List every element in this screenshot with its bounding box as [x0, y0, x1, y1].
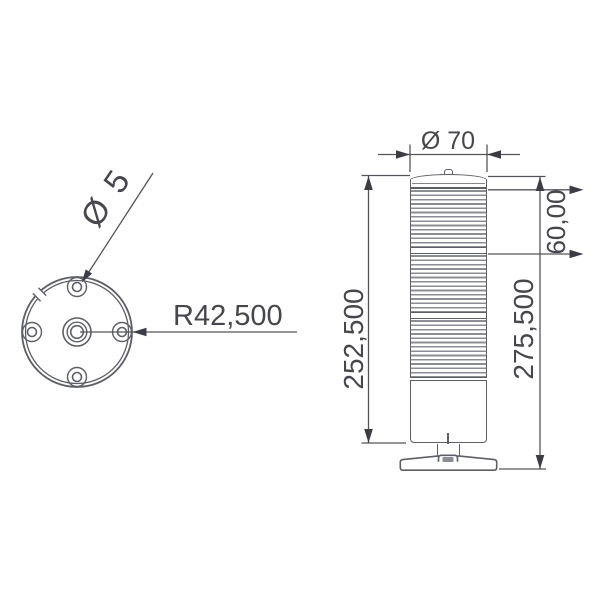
dim-arrowhead	[364, 429, 373, 443]
dim-arrowhead	[364, 176, 373, 190]
foot-tab-insert	[443, 457, 454, 462]
mounting-hole-left	[23, 323, 42, 342]
dim-arrowhead	[570, 186, 584, 195]
center-hub-mid	[67, 322, 87, 342]
lens-segment-2	[411, 253, 486, 313]
technical-drawing-canvas: Ø 70 60,00 252,500 275,500 R42,500 Ø 5	[0, 0, 602, 600]
base-top-view	[22, 277, 132, 387]
mounting-hole-top	[68, 278, 87, 297]
foot-outline	[400, 456, 496, 470]
dim-arrowhead	[536, 455, 545, 469]
mounting-hole-bottom	[68, 368, 87, 387]
lens-segment-3	[411, 318, 486, 378]
tower-stem	[437, 444, 460, 457]
diameter-label: Ø 70	[393, 128, 503, 154]
center-hub-outer	[63, 318, 91, 346]
total-height-label: 275,500	[509, 269, 537, 389]
leader-arrowhead	[82, 269, 92, 282]
leader-arrowhead	[133, 328, 147, 337]
tower-cap-seam	[412, 183, 485, 184]
body-height-label: 252,500	[339, 279, 367, 399]
hole-diameter-label: Ø 5	[61, 142, 152, 253]
outer-rim-circle	[22, 277, 132, 387]
segment-height-label: 60,00	[543, 177, 569, 267]
tower-foot	[400, 455, 496, 470]
center-hub-bore	[71, 326, 84, 339]
mounting-hole-right	[113, 323, 132, 342]
tower-lens-stack	[410, 188, 487, 378]
tower-cap	[410, 174, 487, 188]
dim-arrowhead	[570, 250, 584, 259]
bolt-circle-radius-label: R42,500	[173, 301, 293, 331]
lens-segment-1	[411, 188, 486, 248]
rim-notch	[33, 288, 46, 301]
inner-rim-circle	[26, 281, 129, 384]
